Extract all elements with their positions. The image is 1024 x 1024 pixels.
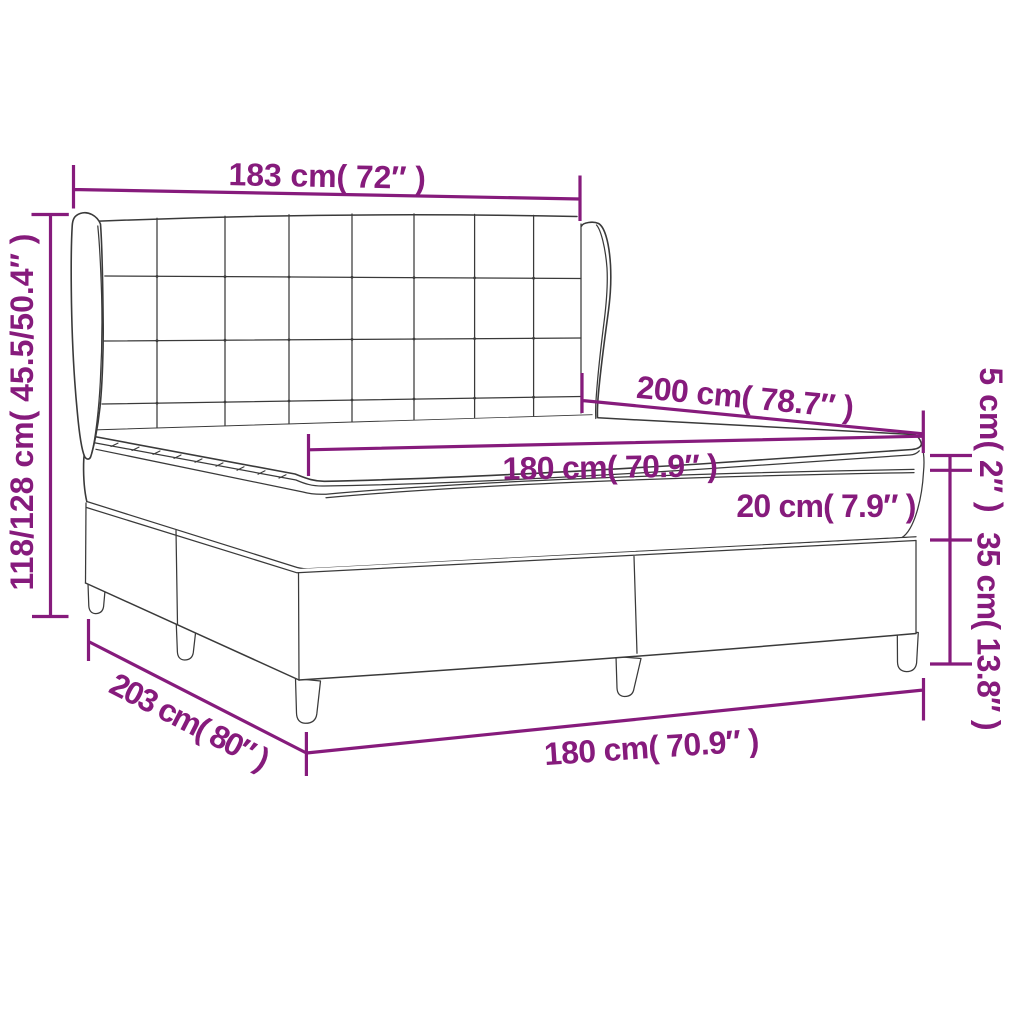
svg-text:180 cm( 70.9″ ): 180 cm( 70.9″ )	[543, 722, 760, 772]
svg-text:35 cm( 13.8″ ): 35 cm( 13.8″ )	[971, 532, 1007, 730]
svg-text:183 cm( 72″ ): 183 cm( 72″ )	[228, 156, 426, 196]
svg-text:180 cm( 70.9″ ): 180 cm( 70.9″ )	[502, 447, 717, 486]
svg-text:203 cm( 80″ ): 203 cm( 80″ )	[104, 666, 275, 778]
svg-text:20 cm( 7.9″ ): 20 cm( 7.9″ )	[736, 488, 915, 524]
svg-text:118/128 cm( 45.5/50.4″ ): 118/128 cm( 45.5/50.4″ )	[4, 234, 40, 591]
svg-text:5 cm( 2″ ): 5 cm( 2″ )	[973, 367, 1009, 512]
